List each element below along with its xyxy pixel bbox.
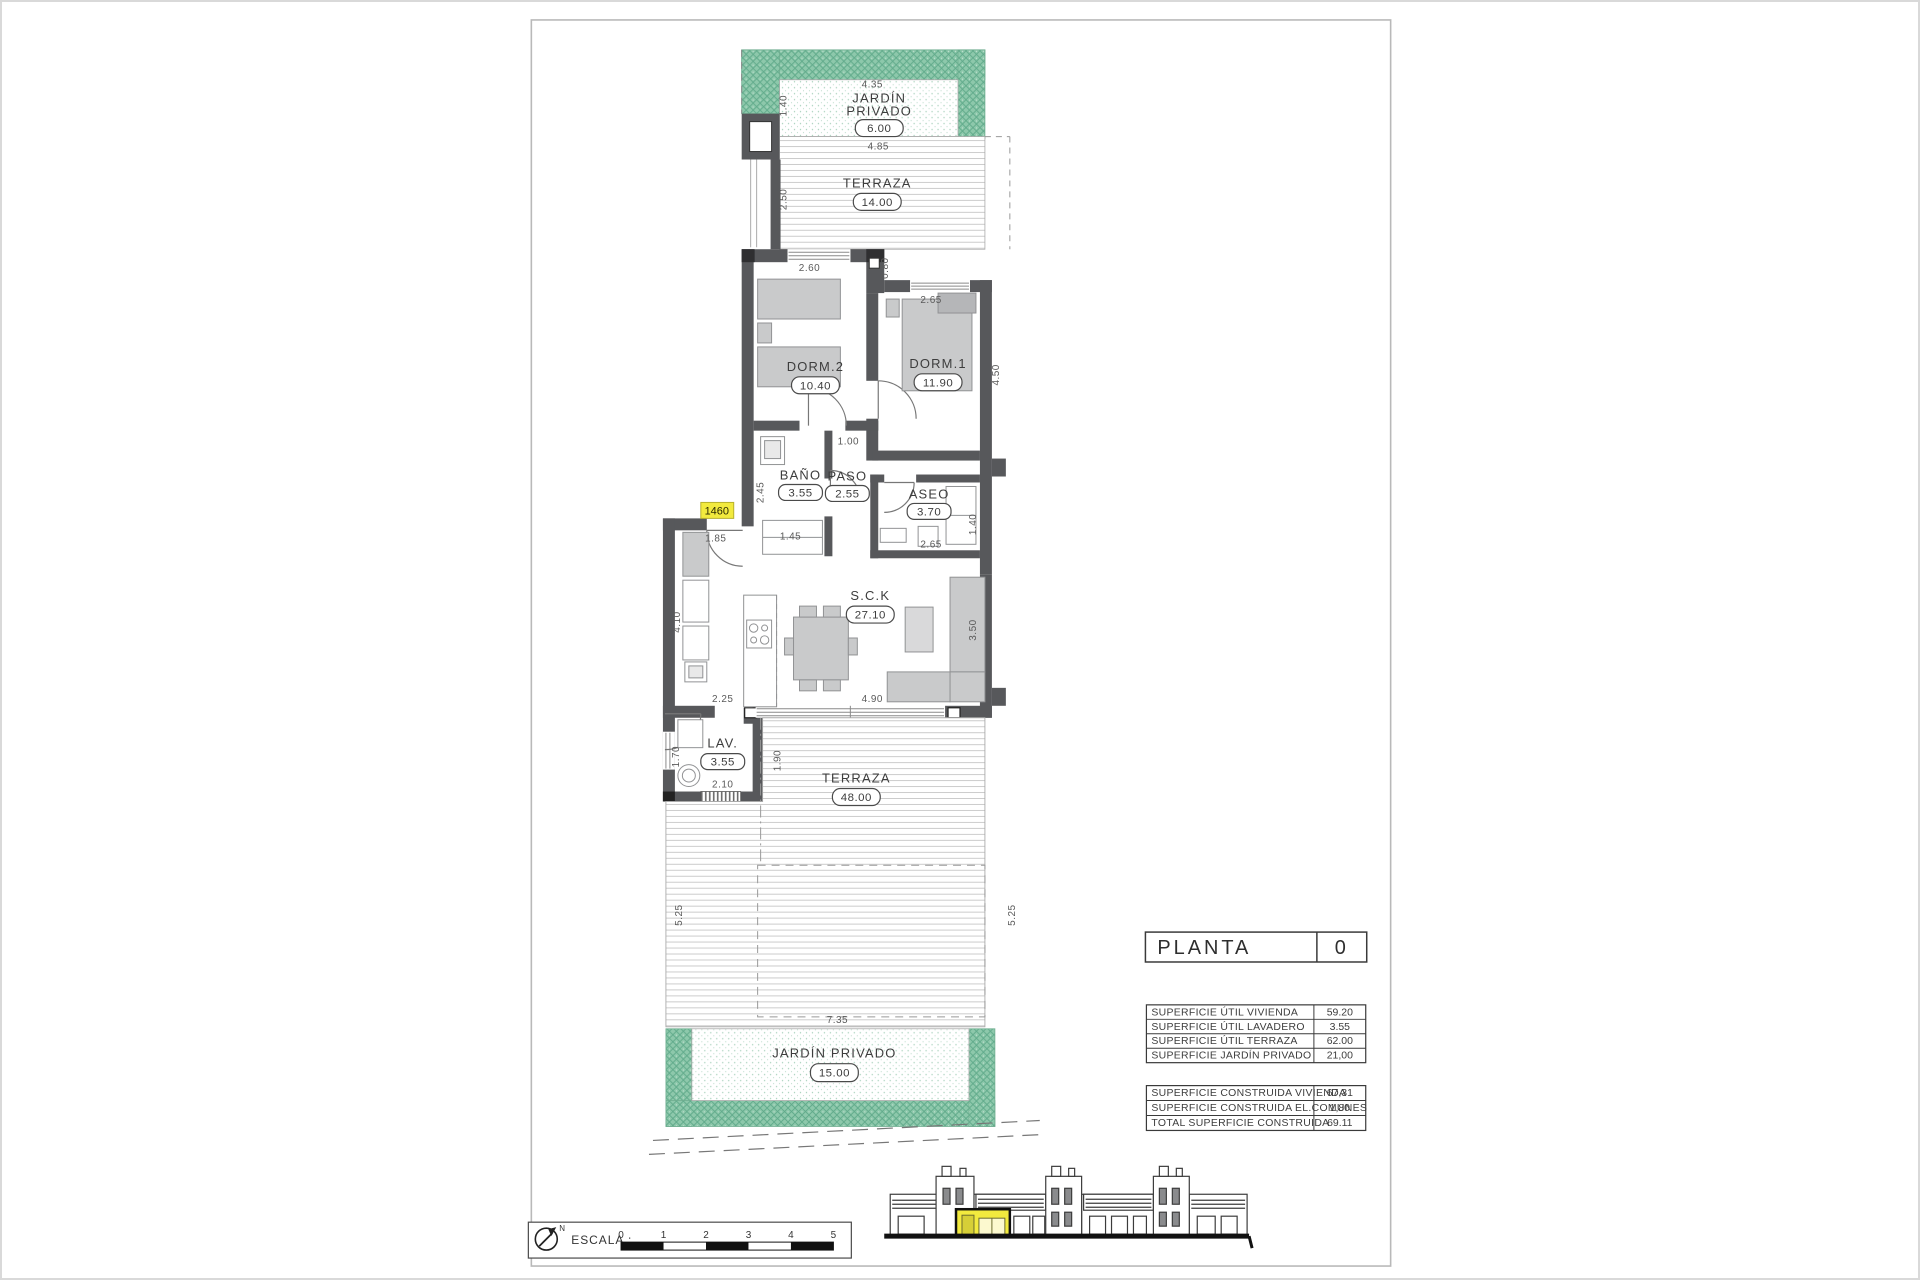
dim-4-50: 4.50 (991, 364, 1002, 385)
architectural-sheet: JARDÍN PRIVADO 6.00 TERRAZA 14.00 DORM.2… (0, 0, 1920, 1280)
table-row-label: SUPERFICIE CONSTRUIDA VIVIENDA (1151, 1088, 1346, 1099)
table-row-value: 62.00 (1327, 1036, 1353, 1047)
table-row-value: 59.20 (1327, 1007, 1353, 1018)
table-row-value: 3.55 (1330, 1022, 1351, 1033)
dim-2-65-aseo: 2.65 (920, 539, 941, 550)
dim-5-25-left: 5.25 (674, 904, 685, 925)
dorm2-label: DORM.2 (787, 359, 844, 374)
bano-label: BAÑO (780, 468, 821, 483)
jardin-top-area: 6.00 (867, 123, 891, 135)
sck-area: 27.10 (855, 610, 886, 622)
dim-1-40-aseo: 1.40 (968, 514, 979, 535)
dim-4-35: 4.35 (862, 80, 883, 91)
title-planta: PLANTA (1157, 937, 1251, 959)
sck-label: S.C.K (850, 588, 890, 603)
top-chimney-block (742, 114, 781, 250)
laundry-vent-grille (701, 792, 741, 802)
surface-table-util: SUPERFICIE ÚTIL VIVIENDA 59.20 SUPERFICI… (1146, 1005, 1365, 1063)
dim-2-25: 2.25 (712, 694, 733, 705)
dim-1-90: 1.90 (773, 750, 784, 771)
lav-area: 3.55 (711, 757, 735, 769)
bano-area: 3.55 (788, 487, 812, 499)
dim-1-85: 1.85 (705, 533, 726, 544)
dim-2-60: 2.60 (799, 263, 820, 274)
table-row-label: TOTAL SUPERFICIE CONSTRUIDA (1151, 1118, 1329, 1129)
dim-2-10: 2.10 (712, 780, 733, 791)
jardin-bottom-area: 15.00 (819, 1068, 850, 1080)
unit-number: 1460 (705, 505, 729, 517)
terraza-top-area: 14.00 (862, 197, 893, 209)
dim-4-90: 4.90 (862, 694, 883, 705)
dim-7-35: 7.35 (827, 1015, 848, 1026)
terraza-main-label: TERRAZA (822, 771, 891, 786)
dim-0-80: 0.80 (880, 257, 891, 278)
title-block: PLANTA 0 (1145, 932, 1366, 962)
dim-2-45: 2.45 (756, 482, 767, 503)
floor-plan-drawing: JARDÍN PRIVADO 6.00 TERRAZA 14.00 DORM.2… (2, 2, 1918, 1278)
building-elevation (884, 1166, 1252, 1248)
highlighted-unit (956, 1209, 1010, 1237)
table-row-value: 67,31 (1327, 1088, 1353, 1099)
scale-box: N ESCALA : 0 1 2 3 4 5 (528, 1222, 851, 1258)
north-label: N (559, 1224, 565, 1233)
scale-tick: 1 (661, 1230, 667, 1241)
aseo-label: ASEO (909, 486, 950, 501)
dorm1-label: DORM.1 (909, 356, 967, 371)
dorm2-area: 10.40 (800, 380, 831, 392)
scale-tick: 4 (788, 1230, 794, 1241)
lav-label: LAV. (707, 736, 738, 751)
dim-4-10: 4.10 (672, 611, 683, 632)
dim-1-70: 1.70 (671, 746, 682, 767)
dim-1-00: 1.00 (838, 437, 859, 448)
title-planta-value: 0 (1335, 937, 1349, 959)
dim-1-45: 1.45 (780, 531, 801, 542)
table-row-value: 1,80 (1330, 1103, 1351, 1114)
table-row-value: 21,00 (1327, 1051, 1353, 1062)
table-row-label: SUPERFICIE ÚTIL LAVADERO (1151, 1020, 1304, 1033)
terraza-main-area: 48.00 (841, 792, 872, 804)
dorm1-area: 11.90 (923, 377, 953, 389)
dim-1-40-top: 1.40 (779, 95, 790, 116)
scale-tick: 3 (746, 1230, 752, 1241)
terraza-top-label: TERRAZA (843, 175, 912, 190)
dim-4-85: 4.85 (868, 142, 889, 153)
jardin-bottom-label: JARDÍN PRIVADO (772, 1046, 896, 1061)
scale-tick: 2 (703, 1230, 709, 1241)
dim-2-65-dorm1: 2.65 (920, 295, 941, 306)
table-row-label: SUPERFICIE ÚTIL VIVIENDA (1151, 1005, 1298, 1018)
table-row-label: SUPERFICIE JARDÍN PRIVADO (1151, 1049, 1311, 1062)
table-row-label: SUPERFICIE ÚTIL TERRAZA (1151, 1034, 1297, 1047)
jardin-top-label-2: PRIVADO (846, 104, 912, 119)
unit-number-tag: 1460 (701, 502, 734, 518)
dim-5-25-right: 5.25 (1007, 904, 1018, 925)
paso-label: PASO (827, 469, 867, 484)
scale-tick: 0 (618, 1230, 624, 1241)
scale-tick: 5 (831, 1230, 837, 1241)
surface-table-construida: SUPERFICIE CONSTRUIDA VIVIENDA 67,31 SUP… (1146, 1086, 1367, 1131)
dim-3-50: 3.50 (968, 619, 979, 640)
aseo-area: 3.70 (917, 506, 941, 518)
top-terrace (780, 137, 1010, 250)
table-row-value: 69.11 (1327, 1118, 1353, 1129)
dim-2-50: 2.50 (779, 189, 790, 210)
paso-area: 2.55 (835, 488, 859, 500)
